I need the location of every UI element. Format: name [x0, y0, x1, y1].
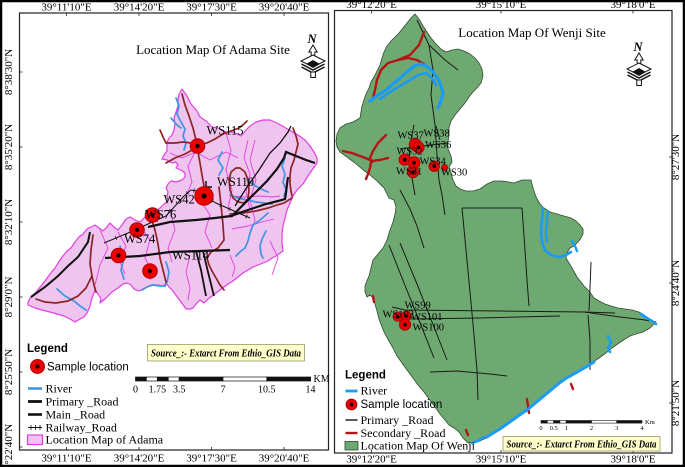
svg-text:WS76: WS76 [145, 208, 176, 222]
svg-text:Source_:- Extarct From Ethio_G: Source_:- Extarct From Ethio_GIS Data [151, 348, 301, 360]
svg-text:39°12'20"E: 39°12'20"E [346, 0, 397, 11]
svg-text:WS36: WS36 [425, 140, 451, 151]
svg-text:Location Map Of Adama Site: Location Map Of Adama Site [136, 42, 290, 57]
svg-text:10.5: 10.5 [258, 385, 276, 396]
svg-text:WS34: WS34 [420, 156, 447, 167]
svg-text:KM: KM [314, 374, 330, 385]
svg-text:WS37: WS37 [398, 131, 424, 142]
svg-text:3: 3 [615, 425, 618, 432]
svg-text:Location Map Of Wenji: Location Map Of Wenji [361, 439, 476, 453]
svg-text:39°20'40"E: 39°20'40"E [259, 453, 310, 465]
svg-text:39°11'10"E: 39°11'10"E [41, 2, 91, 14]
svg-text:8°22'40"N: 8°22'40"N [3, 424, 15, 467]
svg-text:39°17'30"E: 39°17'30"E [186, 2, 237, 14]
svg-text:0: 0 [539, 425, 542, 432]
svg-text:Sample location: Sample location [361, 399, 443, 411]
svg-text:39°18'0"E: 39°18'0"E [610, 454, 655, 466]
svg-text:River: River [361, 384, 388, 398]
svg-text:39°11'10"E: 39°11'10"E [41, 453, 91, 465]
svg-text:39°17'30"E: 39°17'30"E [186, 453, 237, 465]
svg-text:WS30: WS30 [441, 167, 467, 178]
svg-text:Primary _Road: Primary _Road [361, 413, 434, 427]
svg-text:Primary _Road: Primary _Road [46, 395, 119, 409]
svg-text:1: 1 [565, 425, 568, 432]
svg-text:Source_:- Extarct From Ethio_G: Source_:- Extarct From Ethio_GIS Data [507, 439, 657, 451]
svg-text:Legend: Legend [345, 370, 386, 382]
svg-text:8°32'10"N: 8°32'10"N [3, 199, 15, 245]
svg-text:2: 2 [590, 425, 593, 432]
svg-text:39°20'40"E: 39°20'40"E [259, 2, 310, 14]
svg-text:39°18'0"E: 39°18'0"E [610, 0, 655, 11]
svg-text:Legend: Legend [27, 343, 68, 355]
svg-text:39°12'20"E: 39°12'20"E [346, 454, 397, 466]
svg-text:8°29'0"N: 8°29'0"N [3, 277, 15, 318]
svg-text:WS102: WS102 [383, 310, 415, 321]
svg-text:Location Map Of Wenji Site: Location Map Of Wenji Site [458, 25, 606, 40]
svg-text:N: N [306, 32, 317, 46]
svg-text:8°25'50"N: 8°25'50"N [3, 349, 15, 395]
svg-text:River: River [46, 382, 73, 396]
svg-text:WS74: WS74 [124, 232, 156, 246]
svg-text:14: 14 [306, 385, 316, 396]
svg-text:8°38'30"N: 8°38'30"N [3, 49, 15, 95]
svg-text:39°14'20"E: 39°14'20"E [114, 453, 165, 465]
svg-text:WS110: WS110 [217, 175, 254, 189]
svg-text:8°35'20"N: 8°35'20"N [3, 124, 15, 170]
svg-text:Sample location: Sample location [47, 362, 129, 374]
svg-text:WS115: WS115 [207, 124, 244, 138]
svg-text:7: 7 [221, 385, 226, 396]
svg-text:WS42: WS42 [164, 193, 195, 207]
svg-text:Km: Km [645, 419, 655, 426]
svg-text:39°14'20"E: 39°14'20"E [114, 2, 165, 14]
svg-text:3.5: 3.5 [173, 385, 186, 396]
svg-text:WS38: WS38 [424, 129, 450, 140]
svg-text:Main _Road: Main _Road [46, 408, 106, 422]
svg-text:WS31: WS31 [396, 167, 422, 178]
svg-text:1.75: 1.75 [149, 385, 167, 396]
svg-text:Location Map of Adama: Location Map of Adama [46, 433, 164, 447]
svg-text:WS100: WS100 [413, 322, 445, 333]
svg-text:39°15'10"E: 39°15'10"E [476, 0, 527, 11]
svg-text:WS114: WS114 [172, 249, 210, 263]
svg-text:0: 0 [133, 385, 138, 396]
svg-text:39°15'10"E: 39°15'10"E [476, 454, 527, 466]
svg-text:0.5: 0.5 [550, 425, 558, 432]
svg-text:N: N [632, 40, 643, 54]
